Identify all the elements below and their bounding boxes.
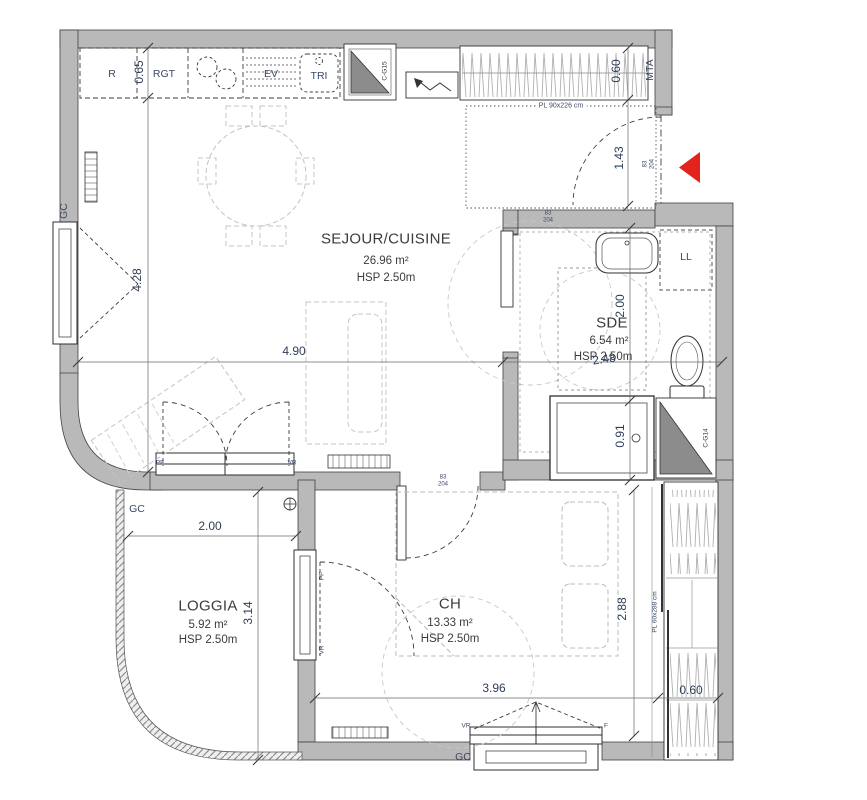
tag-vr-sejour: VR bbox=[287, 460, 296, 467]
dim-ch-width: 3.96 bbox=[482, 681, 505, 695]
electrical-panel-icon bbox=[406, 72, 458, 98]
room-area-sejour: 26.96 m² bbox=[363, 255, 408, 267]
room-ceiling-sejour: HSP 2.50m bbox=[357, 272, 416, 284]
room-area-loggia: 5.92 m² bbox=[189, 619, 228, 631]
room-ceiling-ch: HSP 2.50m bbox=[421, 633, 480, 645]
label-sorting: TRI bbox=[311, 70, 328, 82]
room-label-ch: CH bbox=[439, 596, 461, 613]
floorplan-drawing bbox=[0, 0, 867, 800]
sejour-left-window bbox=[53, 222, 77, 344]
dim-sejour-width: 4.90 bbox=[282, 344, 305, 358]
dim-ch-closet-depth: 0.60 bbox=[679, 683, 702, 697]
label-sink: EV bbox=[264, 68, 278, 80]
dim-sejour-height: 4.28 bbox=[130, 268, 144, 291]
door-size-bedroom: 83 204 bbox=[438, 475, 448, 488]
bedroom-door-leaf bbox=[397, 486, 406, 560]
dim-kitchen-depth: 0.65 bbox=[132, 60, 146, 83]
vent-symbol bbox=[284, 498, 296, 510]
door-size-sde: 83 204 bbox=[543, 211, 553, 224]
dining-table bbox=[206, 126, 306, 226]
bedroom-bottom-window bbox=[470, 727, 602, 744]
label-storage: RGT bbox=[153, 68, 175, 80]
label-closet-bedroom: PL 60x288 cm bbox=[652, 591, 659, 632]
bedroom-closet bbox=[652, 482, 718, 760]
tag-pf-bedroom: PF bbox=[319, 572, 326, 580]
kitchen-counter bbox=[80, 48, 340, 98]
door-size-entrance: 83 204 bbox=[643, 159, 656, 169]
shower-icon bbox=[550, 396, 654, 480]
sde-sliding-door-leaf bbox=[501, 231, 513, 307]
label-duct-cg14: C-G14 bbox=[703, 428, 710, 447]
tag-pf-sejour: PF bbox=[156, 460, 164, 467]
room-label-loggia: LOGGIA bbox=[178, 598, 237, 615]
dim-entry-length: 1.43 bbox=[612, 146, 626, 169]
room-ceiling-loggia: HSP 2.50m bbox=[179, 634, 238, 646]
bedroom-window-arc bbox=[320, 562, 414, 656]
dim-entry-closet-depth: 0.60 bbox=[609, 59, 623, 82]
room-area-sde: 6.54 m² bbox=[590, 335, 629, 347]
radiator-icon bbox=[85, 152, 97, 202]
toilet-icon bbox=[670, 336, 704, 399]
label-gc-bottom: GC bbox=[455, 751, 471, 763]
entrance-arrow-icon bbox=[679, 152, 700, 183]
label-gc-loggia: GC bbox=[129, 503, 145, 515]
bedroom-loggia-window bbox=[294, 550, 316, 660]
label-duct-cg15: C-G15 bbox=[382, 61, 389, 80]
dim-loggia-width: 2.00 bbox=[198, 519, 221, 533]
bed bbox=[396, 492, 618, 656]
room-label-sejour: SEJOUR/CUISINE bbox=[321, 231, 451, 248]
label-washing-machine: LL bbox=[680, 251, 692, 263]
walls bbox=[60, 30, 733, 760]
gc-box-bottom bbox=[474, 744, 598, 770]
cooktop-icon bbox=[216, 69, 236, 89]
sejour-loggia-french-door bbox=[156, 453, 294, 475]
dim-loggia-height: 3.14 bbox=[241, 601, 255, 624]
radiator-icon bbox=[332, 727, 388, 738]
sofa bbox=[306, 302, 386, 444]
label-mta: MTA bbox=[644, 59, 656, 80]
faucet-icon bbox=[316, 58, 323, 65]
washbasin-icon bbox=[596, 233, 658, 273]
room-area-ch: 13.33 m² bbox=[427, 617, 472, 629]
label-gc-left: GC bbox=[58, 203, 70, 219]
bedroom-door-arc bbox=[406, 486, 478, 558]
radiator-icon bbox=[328, 455, 390, 468]
tag-vr-bedroom: VR bbox=[319, 645, 326, 654]
dim-sde-height: 2.00 bbox=[613, 294, 627, 317]
tag-f-bottom: F bbox=[604, 723, 608, 730]
kitchen bbox=[80, 48, 340, 98]
cooktop-icon bbox=[197, 57, 217, 77]
dim-ch-height: 2.88 bbox=[615, 597, 629, 620]
entry-closet-outline bbox=[466, 106, 656, 208]
windows bbox=[53, 222, 602, 770]
tag-vr-bottom: VR bbox=[461, 723, 470, 730]
label-fridge: R bbox=[108, 68, 116, 80]
dim-shower-width: 0.91 bbox=[613, 424, 627, 447]
label-closet-entry: PL 90x226 cm bbox=[536, 103, 587, 110]
floorplan: SEJOUR/CUISINE 26.96 m² HSP 2.50m SDE 6.… bbox=[0, 0, 867, 800]
ghost-furniture bbox=[91, 106, 712, 656]
